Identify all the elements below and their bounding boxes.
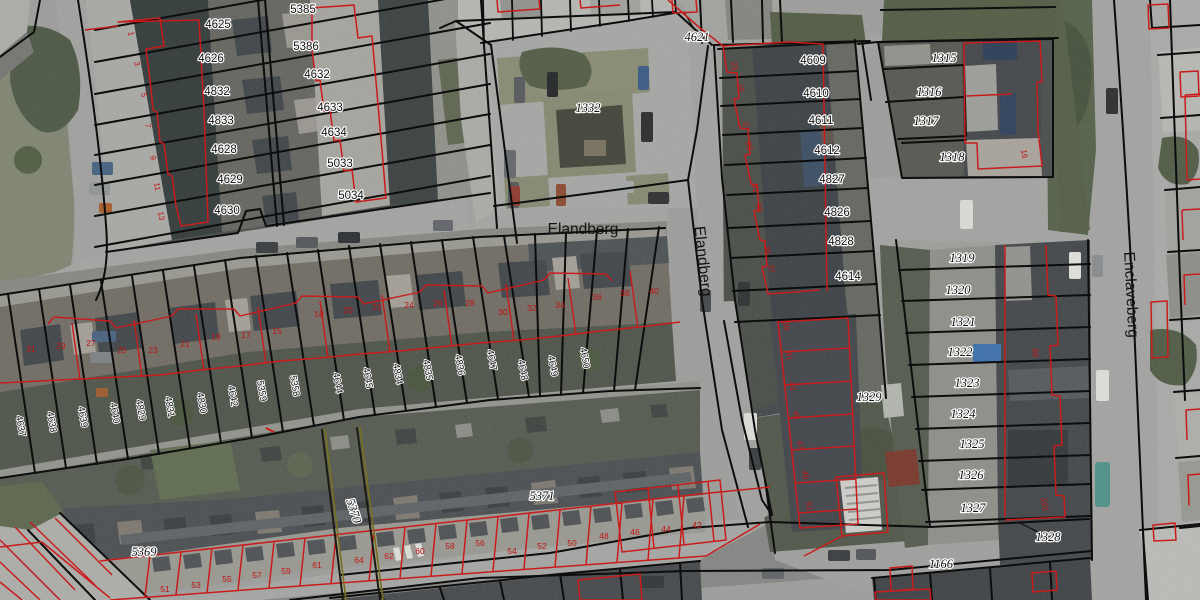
svg-text:44: 44: [661, 524, 671, 534]
svg-text:29: 29: [56, 341, 66, 351]
svg-text:5034: 5034: [338, 190, 364, 202]
svg-text:60: 60: [415, 546, 425, 556]
svg-text:4626: 4626: [198, 53, 224, 65]
svg-text:62: 62: [384, 551, 394, 561]
svg-text:59: 59: [281, 566, 291, 576]
svg-text:4828: 4828: [828, 236, 854, 248]
svg-text:53: 53: [191, 580, 201, 590]
svg-text:24: 24: [404, 300, 414, 310]
svg-text:38: 38: [620, 288, 630, 298]
svg-text:55: 55: [222, 574, 232, 584]
svg-text:Elandberg: Elandberg: [548, 221, 619, 238]
svg-text:34: 34: [555, 300, 565, 310]
svg-text:17: 17: [241, 330, 251, 340]
svg-text:21: 21: [180, 339, 190, 349]
svg-text:4621: 4621: [685, 30, 710, 44]
svg-text:1316: 1316: [917, 85, 943, 99]
svg-text:51: 51: [160, 584, 170, 594]
svg-text:4629: 4629: [217, 174, 243, 186]
svg-text:4611: 4611: [809, 115, 834, 127]
svg-text:4833: 4833: [208, 115, 234, 127]
svg-text:1323: 1323: [955, 376, 980, 390]
svg-text:18: 18: [314, 309, 324, 319]
svg-text:4826: 4826: [824, 207, 850, 219]
svg-text:54: 54: [507, 546, 517, 556]
svg-text:26: 26: [433, 298, 443, 308]
svg-text:42: 42: [692, 520, 702, 530]
svg-text:1320: 1320: [946, 283, 972, 297]
svg-text:22: 22: [372, 302, 382, 312]
svg-text:30: 30: [498, 307, 508, 317]
svg-text:31: 31: [26, 344, 36, 354]
svg-text:4832: 4832: [204, 86, 230, 98]
svg-text:1319: 1319: [950, 251, 976, 265]
svg-text:58: 58: [445, 541, 455, 551]
svg-text:4625: 4625: [205, 19, 231, 31]
svg-text:23: 23: [148, 345, 158, 355]
svg-text:4633: 4633: [317, 102, 343, 114]
svg-text:40: 40: [649, 286, 659, 296]
svg-text:64: 64: [354, 555, 364, 565]
svg-text:1329: 1329: [857, 390, 883, 404]
svg-text:1317: 1317: [914, 114, 940, 128]
svg-text:1166: 1166: [929, 557, 954, 571]
svg-text:48: 48: [599, 531, 609, 541]
svg-text:4634: 4634: [321, 127, 347, 139]
svg-text:5371: 5371: [530, 489, 555, 503]
svg-text:4632: 4632: [304, 69, 330, 81]
svg-text:27: 27: [86, 338, 96, 348]
svg-text:1332: 1332: [576, 101, 601, 115]
svg-text:4609: 4609: [800, 55, 826, 67]
svg-text:25: 25: [117, 345, 127, 355]
svg-text:57: 57: [252, 570, 262, 580]
svg-text:52: 52: [537, 541, 547, 551]
svg-text:1322: 1322: [948, 345, 973, 359]
svg-text:1325: 1325: [960, 437, 985, 451]
svg-text:1324: 1324: [951, 407, 976, 421]
svg-text:32: 32: [527, 303, 537, 313]
svg-text:1315: 1315: [932, 51, 957, 65]
svg-text:20: 20: [343, 305, 353, 315]
svg-text:61: 61: [312, 560, 322, 570]
svg-text:4612: 4612: [814, 145, 840, 157]
svg-text:1321: 1321: [951, 315, 976, 329]
svg-text:5385: 5385: [290, 4, 316, 16]
svg-text:4628: 4628: [211, 144, 237, 156]
svg-text:5033: 5033: [327, 158, 353, 170]
svg-text:15: 15: [272, 326, 282, 336]
svg-text:1328: 1328: [1036, 530, 1062, 544]
svg-text:5386: 5386: [293, 41, 319, 53]
svg-text:28: 28: [465, 298, 475, 308]
svg-text:4827: 4827: [819, 174, 845, 186]
svg-text:1318: 1318: [940, 150, 966, 164]
svg-text:19: 19: [211, 332, 221, 342]
svg-text:5369: 5369: [132, 545, 158, 559]
svg-text:36: 36: [592, 292, 602, 302]
svg-text:4610: 4610: [803, 88, 829, 100]
svg-text:56: 56: [475, 538, 485, 548]
svg-text:46: 46: [630, 527, 640, 537]
svg-text:50: 50: [567, 538, 577, 548]
svg-text:4630: 4630: [214, 205, 240, 217]
svg-text:4614: 4614: [835, 271, 861, 283]
svg-text:1326: 1326: [959, 468, 985, 482]
svg-text:1327: 1327: [961, 501, 987, 515]
